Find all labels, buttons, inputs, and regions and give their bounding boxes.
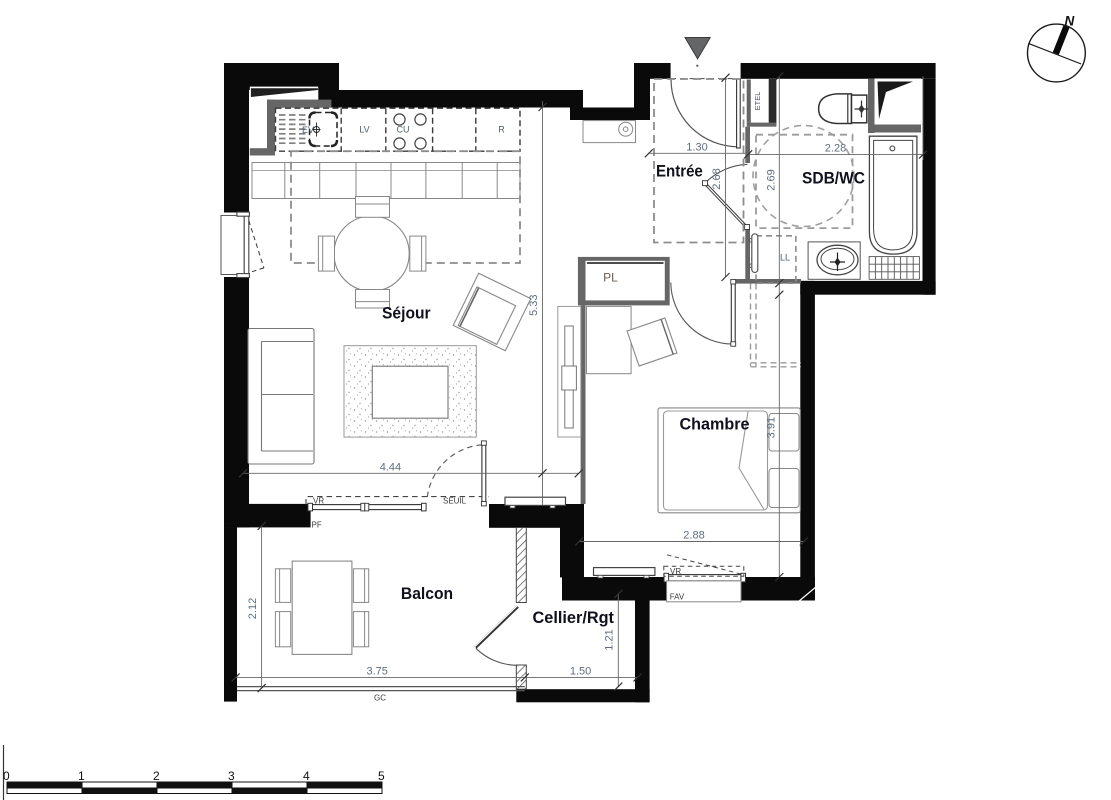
svg-text:2.12: 2.12 xyxy=(247,598,259,619)
svg-text:5: 5 xyxy=(378,769,385,783)
svg-text:3: 3 xyxy=(228,769,235,783)
svg-text:EV: EV xyxy=(302,125,314,135)
svg-text:Séjour: Séjour xyxy=(382,303,431,322)
svg-text:1.21: 1.21 xyxy=(604,629,616,650)
svg-text:4: 4 xyxy=(303,769,310,783)
svg-text:PL: PL xyxy=(603,271,618,285)
svg-text:1: 1 xyxy=(78,769,85,783)
svg-text:LV: LV xyxy=(359,125,369,135)
svg-text:GC: GC xyxy=(374,694,386,703)
svg-text:CU: CU xyxy=(397,125,410,135)
svg-text:VR: VR xyxy=(670,567,681,576)
svg-text:1.50: 1.50 xyxy=(570,665,591,677)
svg-text:PF: PF xyxy=(312,521,322,530)
svg-text:Entrée: Entrée xyxy=(656,162,703,181)
svg-text:2: 2 xyxy=(153,769,160,783)
svg-text:LL: LL xyxy=(780,253,790,263)
svg-text:3.75: 3.75 xyxy=(366,665,387,677)
svg-text:ETEL: ETEL xyxy=(753,92,762,111)
svg-text:N: N xyxy=(1065,14,1075,29)
svg-text:SEUIL: SEUIL xyxy=(443,497,467,506)
svg-text:2.28: 2.28 xyxy=(825,143,846,155)
svg-text:1.30: 1.30 xyxy=(686,141,707,153)
svg-text:0: 0 xyxy=(3,769,10,783)
svg-text:Chambre: Chambre xyxy=(680,415,750,434)
svg-text:4.44: 4.44 xyxy=(380,461,401,473)
svg-text:2.88: 2.88 xyxy=(683,530,704,542)
svg-text:VR: VR xyxy=(313,497,324,506)
svg-text:Balcon: Balcon xyxy=(401,584,453,603)
svg-text:5.33: 5.33 xyxy=(528,294,540,315)
svg-text:R: R xyxy=(498,125,505,135)
svg-text:Cellier/Rgt: Cellier/Rgt xyxy=(533,608,615,627)
svg-text:2.69: 2.69 xyxy=(766,169,778,190)
svg-text:2.68: 2.68 xyxy=(711,168,723,189)
svg-text:FAV: FAV xyxy=(670,593,685,602)
svg-text:SDB/WC: SDB/WC xyxy=(802,168,865,187)
svg-text:3.91: 3.91 xyxy=(766,417,778,438)
